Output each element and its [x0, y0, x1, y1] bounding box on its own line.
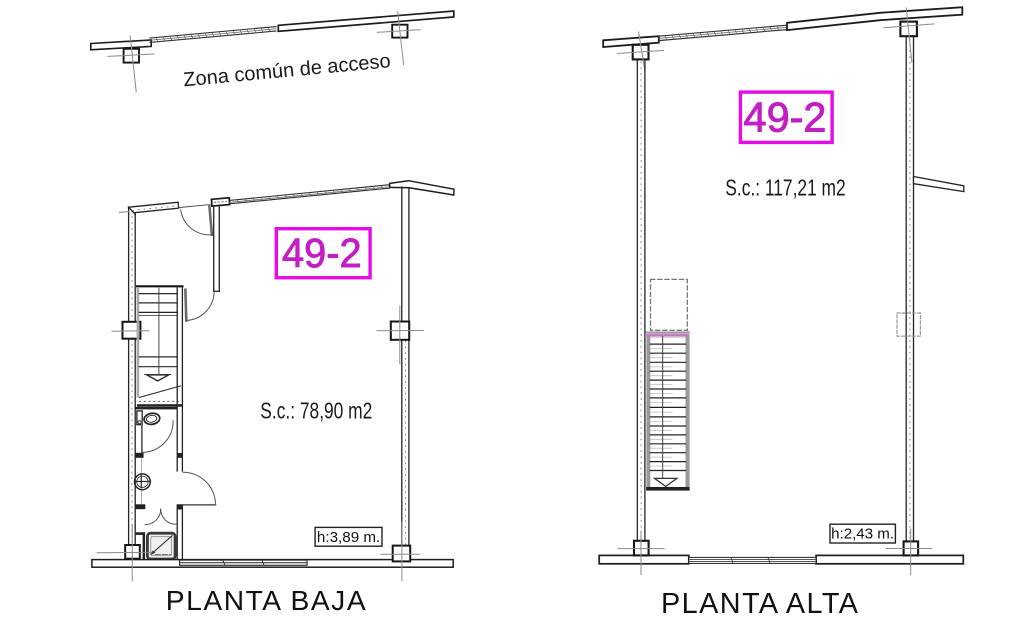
svg-text:S.c.: 78,90 m2: S.c.: 78,90 m2	[260, 398, 372, 424]
svg-text:49-2: 49-2	[744, 93, 827, 140]
svg-text:PLANTA BAJA: PLANTA BAJA	[166, 584, 367, 616]
svg-text:49-2: 49-2	[282, 230, 362, 276]
svg-text:S.c.: 117,21 m2: S.c.: 117,21 m2	[725, 174, 845, 200]
svg-text:PLANTA ALTA: PLANTA ALTA	[661, 588, 859, 620]
svg-text:h:3,89 m.: h:3,89 m.	[317, 529, 380, 546]
svg-text:h:2,43 m.: h:2,43 m.	[831, 526, 894, 543]
